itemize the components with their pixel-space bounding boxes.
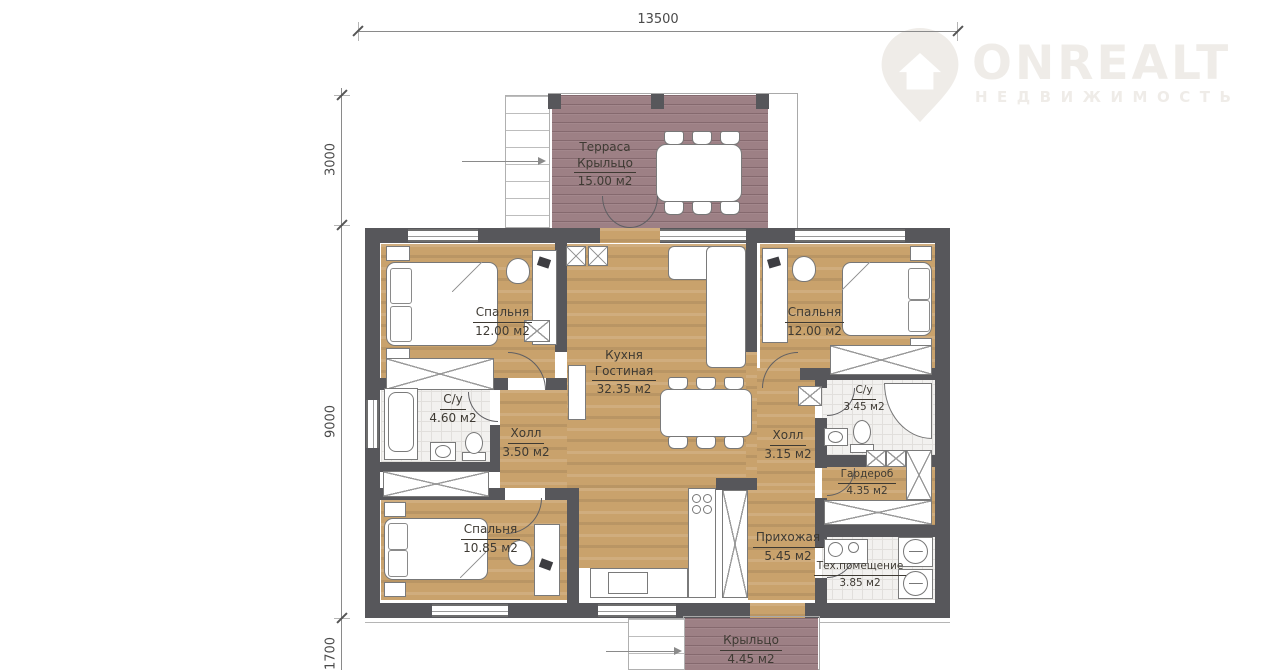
wall-segment (815, 525, 935, 537)
dimension-left-bottom-value: 1700 (324, 626, 339, 670)
wardrobe-crossbox (824, 500, 932, 525)
room-label-bedroom-right: Спальня 12.00 м2 (772, 305, 857, 339)
room-name: Холл (770, 428, 807, 446)
desk-chair (792, 256, 816, 282)
room-name: Терраса (579, 140, 630, 156)
room-name: Гостиная (592, 364, 656, 382)
room-name: Прихожая (753, 530, 823, 548)
terrace-door-opening (600, 228, 660, 243)
room-name: Гардероб (838, 468, 897, 484)
sofa-seat (706, 246, 746, 368)
room-area: 5.45 м2 (764, 548, 811, 565)
wall-segment (546, 378, 567, 390)
nightstand (384, 502, 406, 517)
bed-pillow (908, 300, 930, 332)
room-label-hall-left: Холл 3.50 м2 (494, 426, 558, 460)
room-label-terrace: Терраса Крыльцо 15.00 м2 (560, 140, 650, 190)
window (408, 229, 478, 242)
room-area: 4.60 м2 (429, 410, 476, 427)
room-area: 3.85 м2 (839, 576, 880, 591)
logo-subtitle: НЕДВИЖИМОСТЬ (975, 88, 1240, 106)
stove-burner (703, 494, 712, 503)
room-area: 3.45 м2 (843, 400, 884, 415)
bed-pillow (390, 268, 412, 304)
terrace-chair (692, 201, 712, 215)
terrace-entry-arrow-head (538, 157, 546, 165)
porch-steps (628, 618, 685, 670)
window (366, 400, 379, 448)
stove-burner (692, 505, 701, 514)
foundation-line (365, 622, 628, 623)
room-label-tech: Тех.помещение 3.85 м2 (812, 560, 908, 590)
room-label-bath-right: С/у 3.45 м2 (836, 384, 892, 414)
dining-chair (668, 436, 688, 449)
room-name: Спальня (473, 305, 532, 323)
bed-pillow (388, 523, 408, 550)
wall-segment (815, 368, 827, 388)
room-area: 3.15 м2 (764, 446, 811, 463)
toilet-bowl (465, 432, 483, 454)
terrace-post (651, 94, 664, 109)
wardrobe-crossbox (886, 450, 906, 467)
vent-crossbox (588, 246, 608, 266)
room-name: Кухня (605, 348, 643, 364)
room-label-hall-right: Холл 3.15 м2 (758, 428, 818, 462)
room-name: Крыльцо (720, 633, 782, 651)
room-label-porch: Крыльцо 4.45 м2 (712, 633, 790, 667)
stove-burner (692, 494, 701, 503)
room-area: 12.00 м2 (787, 323, 842, 340)
window (795, 229, 905, 242)
terrace-chair (664, 201, 684, 215)
sink-basin (435, 445, 451, 458)
nightstand (910, 246, 932, 261)
foundation-line (820, 622, 950, 623)
sink-basin (828, 431, 843, 443)
bed-fold-line (452, 262, 482, 292)
dining-chair (724, 436, 744, 449)
dimension-line-left (341, 88, 342, 670)
room-label-bedroom-left: Спальня 12.00 м2 (460, 305, 545, 339)
room-area: 32.35 м2 (597, 381, 652, 398)
nightstand (384, 582, 406, 597)
room-label-bedroom-bottom: Спальня 10.85 м2 (448, 522, 533, 556)
nightstand (386, 246, 410, 261)
wardrobe-crossbox (383, 471, 489, 497)
wardrobe-crossbox (830, 345, 932, 375)
room-area: 10.85 м2 (463, 540, 518, 557)
kitchen-counter-vertical (688, 488, 716, 598)
wall-segment (567, 490, 579, 603)
dimension-left-middle-value: 9000 (324, 394, 339, 450)
wall-segment (746, 243, 757, 352)
wardrobe-crossbox (386, 358, 494, 390)
fridge-crossbox (722, 490, 748, 598)
terrace-entry-arrow-line (462, 161, 542, 162)
vent-crossbox (566, 246, 586, 266)
terrace-chair (692, 131, 712, 145)
porch-entry-arrow-line (606, 651, 678, 652)
vent-crossbox (798, 386, 822, 406)
room-name: Крыльцо (574, 156, 636, 174)
bed-pillow (390, 306, 412, 342)
bathtub-inner (388, 392, 414, 452)
room-label-wardrobe: Гардероб 4.35 м2 (828, 468, 906, 498)
wall-segment (716, 478, 757, 490)
room-label-kitchen: Кухня Гостиная 32.35 м2 (580, 348, 668, 398)
bed-pillow (388, 550, 408, 577)
room-name: С/у (440, 392, 466, 410)
window (432, 604, 508, 617)
wardrobe-crossbox (906, 450, 932, 500)
floor-kitchen-lower (579, 488, 688, 568)
room-area: 4.35 м2 (846, 484, 887, 499)
kitchen-sink (608, 572, 648, 594)
window (598, 604, 676, 617)
terrace-chair (720, 201, 740, 215)
room-name: С/у (852, 384, 875, 400)
room-label-bath-left: С/у 4.60 м2 (422, 392, 484, 426)
onrealt-pin-icon (872, 28, 968, 124)
wardrobe-crossbox (866, 450, 886, 467)
room-area: 12.00 м2 (475, 323, 530, 340)
floor-plan-canvas: ONREALT НЕДВИЖИМОСТЬ 13500 3000 9000 170… (0, 0, 1280, 670)
bed-fold-line (842, 262, 870, 290)
dining-chair (696, 436, 716, 449)
bed-pillow (908, 268, 930, 300)
room-area: 3.50 м2 (502, 444, 549, 461)
room-name: Спальня (785, 305, 844, 323)
terrace-post (548, 94, 561, 109)
room-area: 15.00 м2 (578, 173, 633, 190)
room-name: Холл (508, 426, 545, 444)
dining-table (660, 389, 752, 437)
tech-basin (848, 542, 859, 553)
terrace-table (656, 144, 742, 202)
window (660, 229, 746, 242)
dimension-left-top-value: 3000 (324, 132, 339, 188)
terrace-post (756, 94, 769, 109)
dimension-top-value: 13500 (610, 12, 706, 27)
stove-burner (703, 505, 712, 514)
room-name: Спальня (461, 522, 520, 540)
toilet-bowl (853, 420, 871, 444)
desk-chair (506, 258, 530, 284)
terrace-chair (664, 131, 684, 145)
wall-outer-right (935, 228, 950, 618)
tech-basin (828, 542, 843, 557)
logo-title: ONREALT (972, 36, 1231, 91)
dimension-line-top (358, 31, 958, 32)
porch-entry-arrow-head (674, 647, 682, 655)
room-area: 4.45 м2 (727, 651, 774, 668)
room-name: Тех.помещение (814, 560, 907, 576)
terrace-chair (720, 131, 740, 145)
